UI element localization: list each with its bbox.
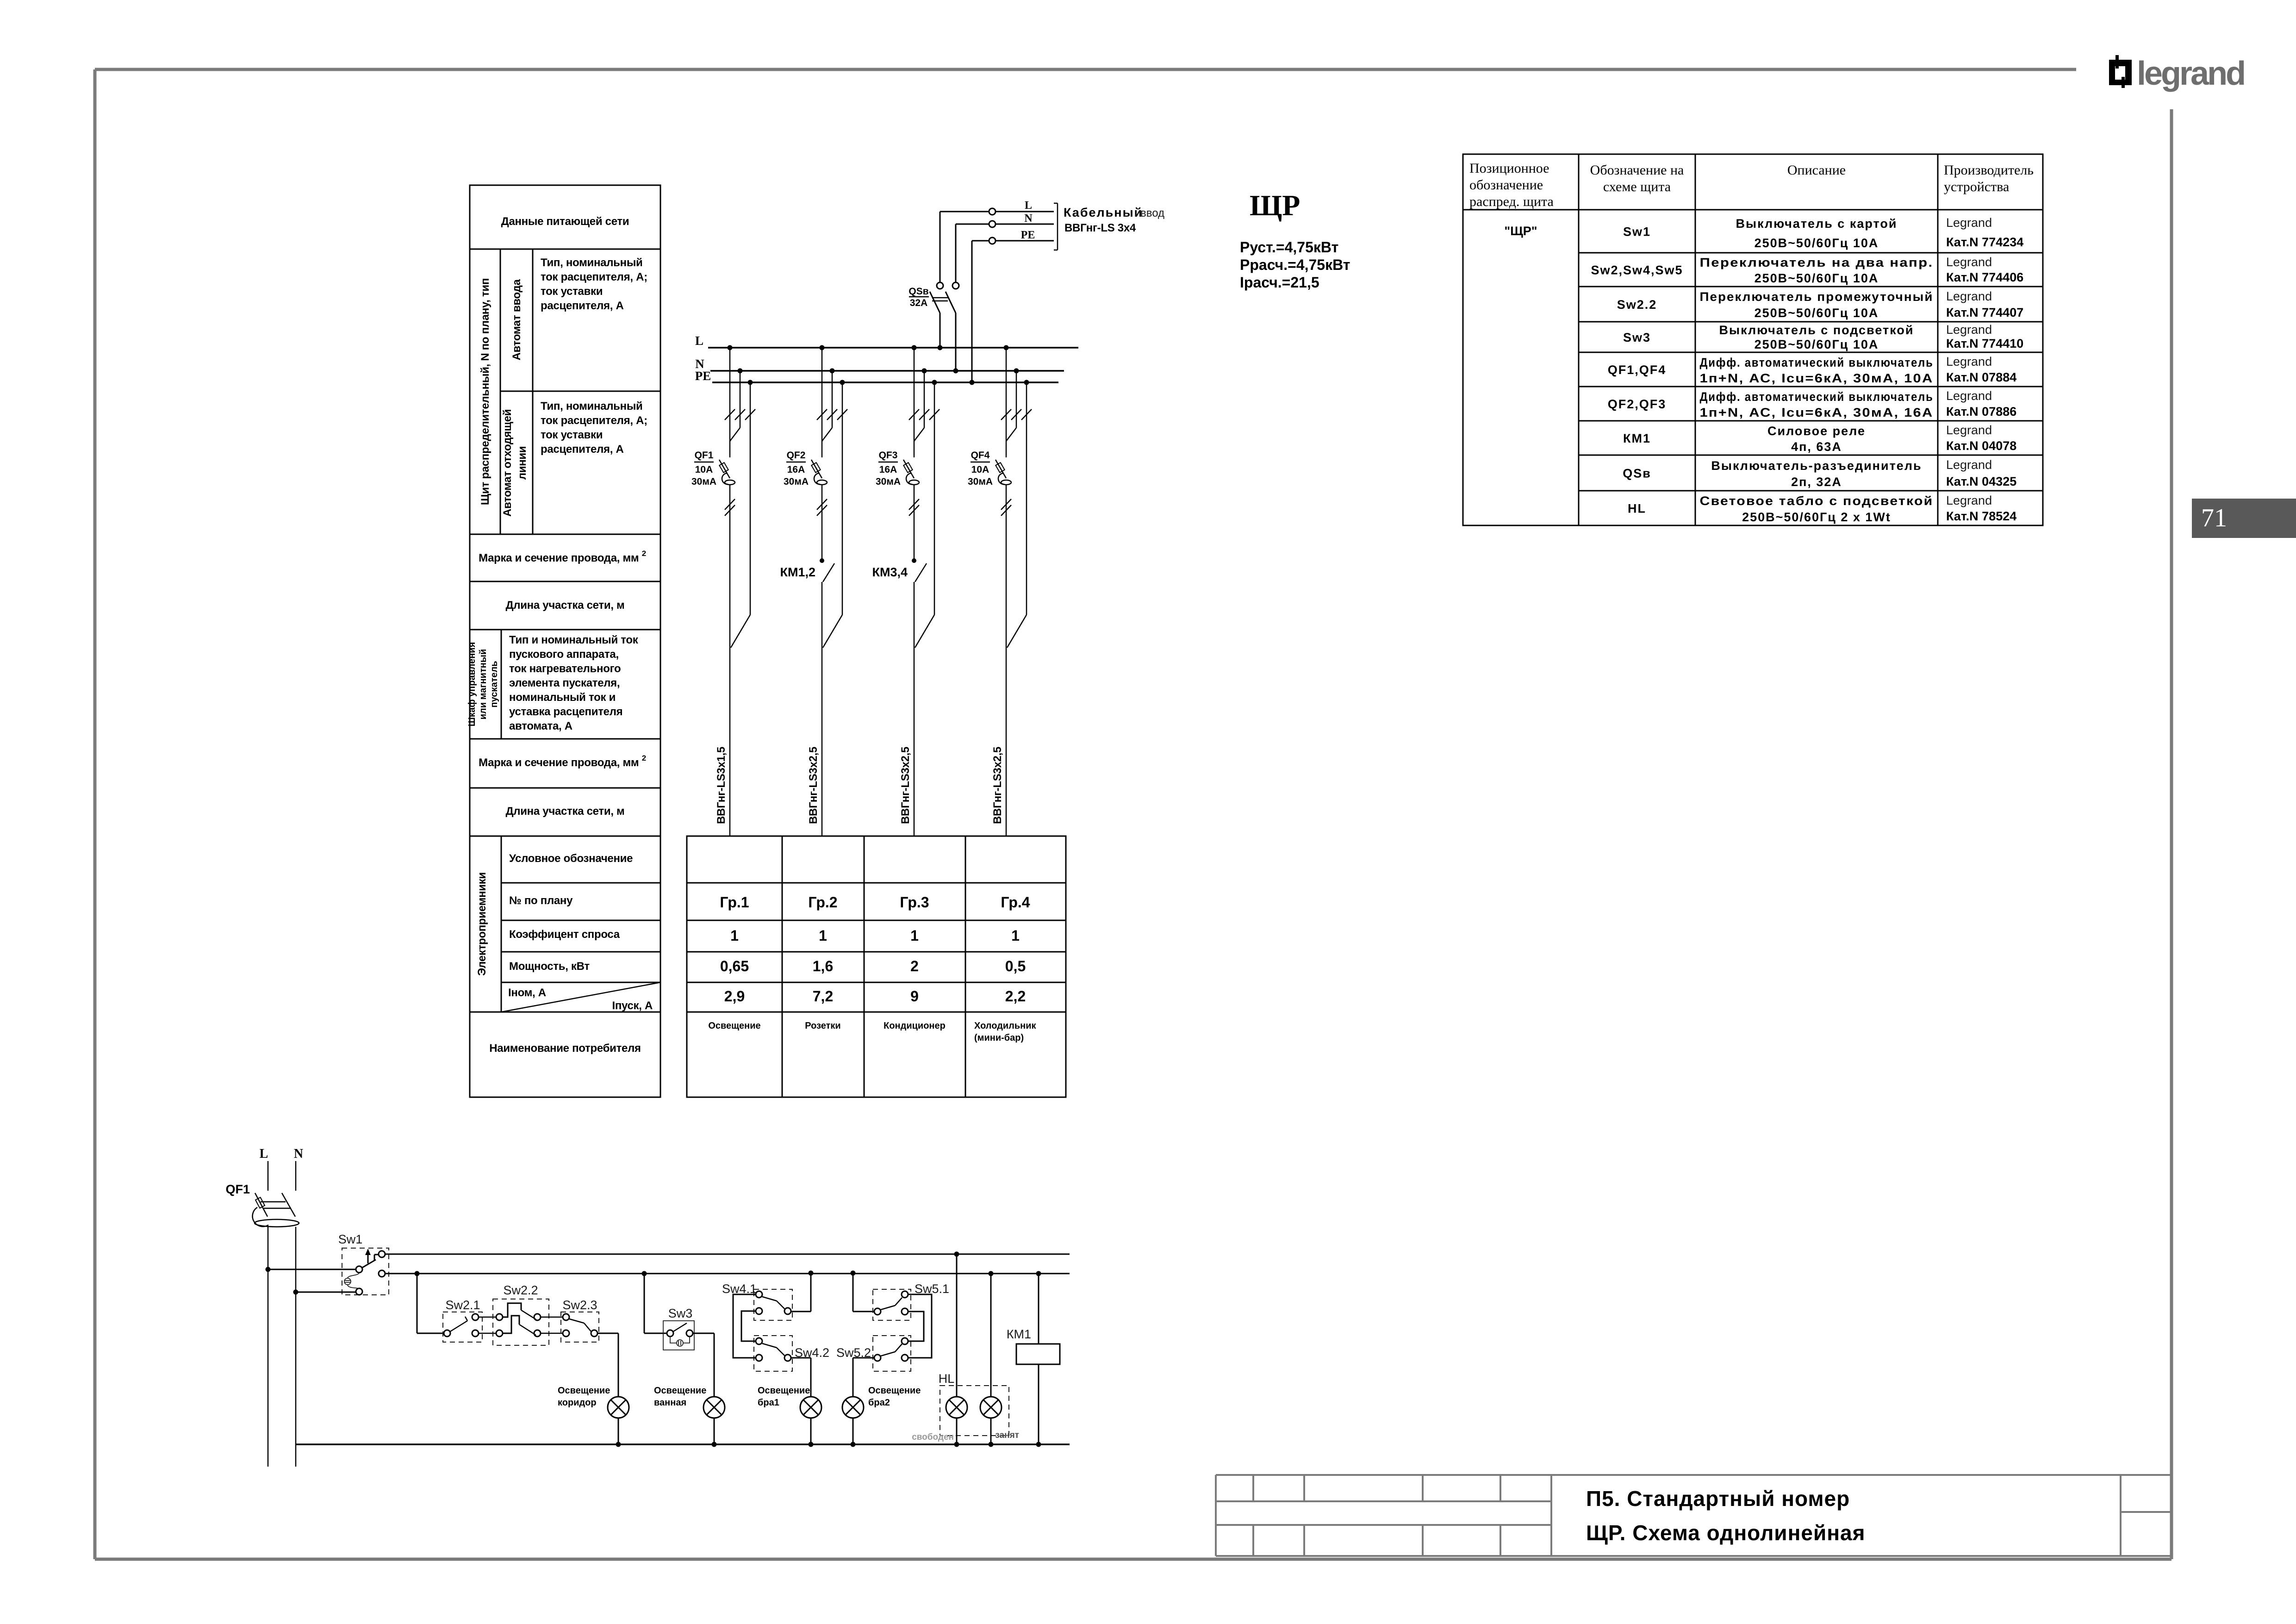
svg-text:устройства: устройства	[1944, 179, 2009, 194]
svg-text:Руст.=4,75кВт: Руст.=4,75кВт	[1240, 239, 1338, 256]
svg-text:Данные питающей сети: Данные питающей сети	[501, 215, 629, 228]
svg-text:Кат.N 04078: Кат.N 04078	[1946, 439, 2016, 453]
svg-text:Тип, номинальный: Тип, номинальный	[541, 256, 642, 269]
svg-text:Кат.N 774234: Кат.N 774234	[1946, 235, 2023, 249]
svg-text:QSв: QSв	[1623, 467, 1651, 481]
svg-text:Кат.N 774407: Кат.N 774407	[1946, 306, 2023, 319]
svg-text:Шкаф управления: Шкаф управления	[467, 642, 477, 726]
svg-text:Освещение: Освещение	[708, 1021, 760, 1031]
svg-text:Sw2.3: Sw2.3	[562, 1298, 597, 1312]
svg-text:Legrand: Legrand	[1946, 493, 1992, 507]
svg-text:QF1: QF1	[225, 1182, 250, 1196]
svg-text:обозначение: обозначение	[1469, 177, 1543, 193]
svg-text:Переключатель промежуточный: Переключатель промежуточный	[1700, 290, 1934, 304]
svg-text:Sw2.1: Sw2.1	[445, 1298, 480, 1312]
svg-text:Iпуск, А: Iпуск, А	[612, 999, 653, 1012]
svg-text:Условное обозначение: Условное обозначение	[509, 852, 633, 865]
svg-text:"ЩР": "ЩР"	[1504, 224, 1537, 238]
svg-text:Кат.N 07884: Кат.N 07884	[1946, 370, 2016, 384]
svg-text:ВВГнг-LS3х1,5: ВВГнг-LS3х1,5	[715, 747, 728, 824]
svg-text:Гр.4: Гр.4	[1001, 894, 1030, 911]
svg-text:legrand: legrand	[2137, 55, 2244, 92]
svg-text:30мА: 30мА	[691, 476, 716, 487]
svg-text:30мА: 30мА	[968, 476, 993, 487]
svg-text:ввод: ввод	[1140, 207, 1164, 219]
svg-text:9: 9	[910, 988, 919, 1005]
svg-text:линии: линии	[516, 446, 529, 480]
svg-text:HL: HL	[939, 1372, 955, 1386]
svg-text:пускового аппарата,: пускового аппарата,	[509, 648, 619, 661]
svg-text:Наименование потребителя: Наименование потребителя	[489, 1042, 641, 1055]
svg-text:ток уставки: ток уставки	[541, 429, 603, 441]
svg-text:Выключатель с картой: Выключатель с картой	[1736, 217, 1898, 231]
svg-text:элемента пускателя,: элемента пускателя,	[509, 677, 620, 689]
svg-text:QF3: QF3	[879, 450, 898, 461]
svg-text:Длина участка сети, м: Длина участка сети, м	[505, 599, 624, 612]
svg-text:Световое табло с подсветкой: Световое табло с подсветкой	[1700, 494, 1934, 508]
svg-text:Sw3: Sw3	[1623, 331, 1651, 344]
svg-text:N: N	[294, 1147, 303, 1161]
svg-text:Автомат отходящей: Автомат отходящей	[501, 409, 514, 517]
svg-text:Кондиционер: Кондиционер	[884, 1021, 946, 1031]
svg-text:1,6: 1,6	[813, 958, 833, 974]
svg-text:Электроприемники: Электроприемники	[476, 872, 488, 976]
svg-text:Гр.1: Гр.1	[720, 894, 749, 911]
svg-text:Выключатель-разъединитель: Выключатель-разъединитель	[1711, 459, 1922, 473]
svg-text:0,5: 0,5	[1005, 958, 1026, 974]
svg-text:№ по плану: № по плану	[509, 894, 573, 907]
svg-text:Кат.N 774410: Кат.N 774410	[1946, 337, 2023, 350]
svg-text:пускатель: пускатель	[489, 661, 499, 708]
svg-text:Iрасч.=21,5: Iрасч.=21,5	[1240, 274, 1319, 291]
svg-text:Sw2.2: Sw2.2	[503, 1283, 538, 1297]
svg-text:2,2: 2,2	[1005, 988, 1026, 1005]
svg-text:Legrand: Legrand	[1946, 289, 1992, 303]
svg-text:бра1: бра1	[758, 1398, 779, 1408]
svg-text:Гр.3: Гр.3	[900, 894, 929, 911]
svg-text:Кабельный: Кабельный	[1064, 206, 1143, 219]
svg-text:0,65: 0,65	[720, 958, 749, 974]
svg-text:Описание: Описание	[1787, 162, 1846, 178]
svg-text:ВВГнг-LS3х2,5: ВВГнг-LS3х2,5	[991, 747, 1004, 824]
svg-text:КМ1: КМ1	[1007, 1327, 1031, 1341]
svg-text:Legrand: Legrand	[1946, 389, 1992, 403]
svg-text:Кат.N 04325: Кат.N 04325	[1946, 475, 2016, 488]
svg-text:Гр.2: Гр.2	[808, 894, 837, 911]
svg-text:1: 1	[1011, 927, 1020, 944]
svg-text:(мини-бар): (мини-бар)	[974, 1033, 1024, 1043]
svg-text:250В~50/60Гц 10А: 250В~50/60Гц 10А	[1755, 337, 1879, 351]
svg-text:Тип и номинальный ток: Тип и номинальный ток	[509, 634, 639, 646]
svg-text:Автомат ввода: Автомат ввода	[510, 279, 523, 361]
svg-text:схеме щита: схеме щита	[1603, 179, 1671, 194]
svg-text:30мА: 30мА	[876, 476, 901, 487]
svg-text:Коэффицент спроса: Коэффицент спроса	[509, 928, 620, 941]
svg-text:250В~50/60Гц 10А: 250В~50/60Гц 10А	[1755, 236, 1879, 250]
svg-text:ток нагревательного: ток нагревательного	[509, 662, 621, 675]
svg-text:Переключатель на два напр.: Переключатель на два напр.	[1700, 256, 1934, 269]
svg-text:КМ1,2: КМ1,2	[780, 565, 815, 579]
svg-text:Розетки: Розетки	[805, 1021, 840, 1031]
svg-text:L: L	[1025, 200, 1032, 212]
svg-text:Sw2,Sw4,Sw5: Sw2,Sw4,Sw5	[1591, 263, 1683, 277]
svg-text:занят: занят	[995, 1430, 1019, 1440]
svg-text:30мА: 30мА	[784, 476, 809, 487]
svg-text:расцепителя, А: расцепителя, А	[541, 300, 624, 312]
svg-text:ванная: ванная	[654, 1398, 686, 1408]
svg-text:Освещение: Освещение	[868, 1386, 921, 1396]
svg-text:Legrand: Legrand	[1946, 355, 1992, 369]
svg-text:Дифф. автоматический выключате: Дифф. автоматический выключатель	[1700, 356, 1934, 369]
svg-text:Холодильник: Холодильник	[974, 1021, 1037, 1031]
svg-text:Позиционное: Позиционное	[1469, 161, 1549, 176]
svg-text:L: L	[260, 1147, 268, 1161]
svg-text:71: 71	[2201, 504, 2227, 532]
svg-text:П5. Стандартный номер: П5. Стандартный номер	[1586, 1487, 1850, 1511]
svg-text:Legrand: Legrand	[1946, 216, 1992, 230]
svg-text:ток уставки: ток уставки	[541, 285, 603, 298]
svg-text:1: 1	[730, 927, 739, 944]
svg-text:ВВГнг-LS3х2,5: ВВГнг-LS3х2,5	[807, 747, 820, 824]
svg-text:ВВГнг-LS 3х4: ВВГнг-LS 3х4	[1064, 222, 1136, 234]
svg-text:Длина участка сети, м: Длина участка сети, м	[505, 805, 624, 818]
svg-text:автомата, А: автомата, А	[509, 720, 572, 732]
svg-text:Освещение: Освещение	[558, 1386, 610, 1396]
svg-text:32А: 32А	[910, 298, 928, 308]
svg-text:PE: PE	[695, 369, 711, 383]
svg-text:Мощность, кВт: Мощность, кВт	[509, 960, 590, 973]
svg-text:КМ1: КМ1	[1623, 431, 1651, 445]
svg-text:QF4: QF4	[971, 450, 990, 461]
svg-text:16А: 16А	[879, 464, 897, 475]
svg-text:Legrand: Legrand	[1946, 423, 1992, 437]
svg-text:ВВГнг-LS3х2,5: ВВГнг-LS3х2,5	[899, 747, 912, 824]
svg-text:1: 1	[819, 927, 827, 944]
svg-text:2,9: 2,9	[724, 988, 745, 1005]
svg-text:номинальный ток и: номинальный ток и	[509, 691, 616, 704]
svg-text:Производитель: Производитель	[1944, 162, 2034, 178]
svg-text:Sw3: Sw3	[668, 1306, 693, 1320]
svg-text:КМ3,4: КМ3,4	[872, 565, 908, 579]
svg-text:2: 2	[910, 958, 919, 974]
svg-text:250В~50/60Гц 2 х 1Wt: 250В~50/60Гц 2 х 1Wt	[1742, 510, 1891, 524]
svg-text:Кат.N 774406: Кат.N 774406	[1946, 270, 2023, 284]
svg-text:Iном, А: Iном, А	[508, 987, 546, 999]
svg-text:Дифф. автоматический выключате: Дифф. автоматический выключатель	[1700, 390, 1934, 404]
svg-text:Кат.N 07886: Кат.N 07886	[1946, 405, 2016, 418]
svg-text:Обозначение на: Обозначение на	[1590, 162, 1684, 178]
svg-text:ЩР: ЩР	[1250, 189, 1300, 222]
svg-text:или магнитный: или магнитный	[478, 649, 488, 719]
svg-text:Sw1: Sw1	[1623, 225, 1651, 239]
svg-text:L: L	[695, 334, 703, 348]
svg-text:ЩР. Схема однолинейная: ЩР. Схема однолинейная	[1586, 1521, 1865, 1545]
svg-text:бра2: бра2	[868, 1398, 890, 1408]
svg-text:Щит распределительный, N по пл: Щит распределительный, N по плану, тип	[479, 278, 492, 505]
svg-text:HL: HL	[1628, 502, 1646, 516]
svg-text:уставка расцепителя: уставка расцепителя	[509, 706, 622, 718]
svg-text:QF1: QF1	[695, 450, 714, 461]
svg-text:Выключатель с подсветкой: Выключатель с подсветкой	[1719, 323, 1914, 337]
svg-text:N: N	[1024, 212, 1033, 225]
svg-text:Силовое реле: Силовое реле	[1767, 424, 1866, 438]
svg-text:QF1,QF4: QF1,QF4	[1608, 363, 1667, 377]
svg-text:Legrand: Legrand	[1946, 323, 1992, 337]
svg-text:1: 1	[910, 927, 919, 944]
svg-text:Ррасч.=4,75кВт: Ррасч.=4,75кВт	[1240, 256, 1350, 273]
svg-text:Тип, номинальный: Тип, номинальный	[541, 400, 642, 412]
svg-text:Legrand: Legrand	[1946, 255, 1992, 269]
svg-text:10А: 10А	[971, 464, 989, 475]
svg-text:Кат.N 78524: Кат.N 78524	[1946, 509, 2016, 523]
svg-text:Sw1: Sw1	[338, 1232, 363, 1246]
svg-text:7,2: 7,2	[813, 988, 833, 1005]
svg-text:Освещение: Освещение	[654, 1386, 706, 1396]
svg-text:250В~50/60Гц 10А: 250В~50/60Гц 10А	[1755, 271, 1879, 285]
svg-text:QF2,QF3: QF2,QF3	[1608, 397, 1667, 411]
svg-text:4п, 63А: 4п, 63А	[1791, 440, 1842, 454]
svg-text:PE: PE	[1021, 229, 1035, 241]
svg-text:Sw2.2: Sw2.2	[1617, 298, 1657, 312]
svg-text:Освещение: Освещение	[758, 1386, 810, 1396]
svg-text:16А: 16А	[787, 464, 805, 475]
svg-text:расцепителя, А: расцепителя, А	[541, 443, 624, 456]
svg-text:коридор: коридор	[558, 1398, 597, 1408]
svg-text:1п+N, АС, Icu=6кА, 30мА, 10А: 1п+N, АС, Icu=6кА, 30мА, 10А	[1700, 371, 1934, 385]
svg-text:ток расцепителя, А;: ток расцепителя, А;	[541, 271, 647, 283]
svg-text:распред. щита: распред. щита	[1469, 194, 1554, 209]
svg-text:250В~50/60Гц 10А: 250В~50/60Гц 10А	[1755, 306, 1879, 320]
svg-text:QSв: QSв	[908, 286, 928, 297]
svg-text:1п+N, АС, Icu=6кА, 30мА, 16А: 1п+N, АС, Icu=6кА, 30мА, 16А	[1700, 406, 1934, 419]
svg-text:10А: 10А	[695, 464, 713, 475]
svg-text:свободен: свободен	[912, 1432, 954, 1442]
svg-text:Legrand: Legrand	[1946, 458, 1992, 472]
svg-text:ток расцепителя, А;: ток расцепителя, А;	[541, 414, 647, 427]
svg-text:2п, 32А: 2п, 32А	[1791, 475, 1842, 489]
svg-text:QF2: QF2	[787, 450, 806, 461]
